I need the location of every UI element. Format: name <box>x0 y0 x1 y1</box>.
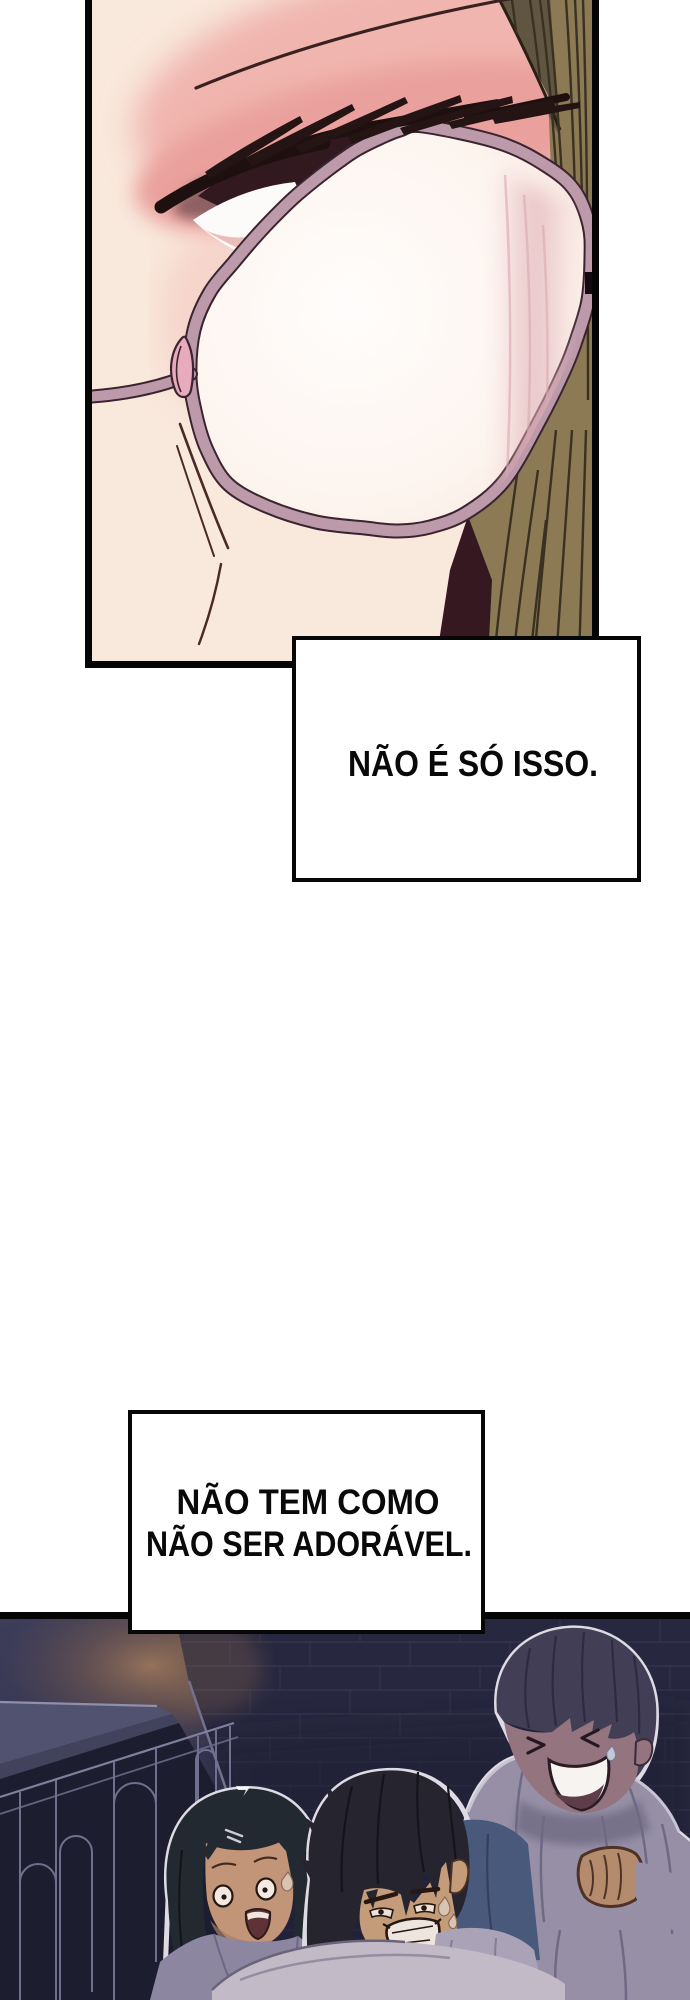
svg-text:NÃO SER ADORÁVEL.: NÃO SER ADORÁVEL. <box>146 1524 472 1564</box>
svg-text:NÃO É SÓ ISSO.: NÃO É SÓ ISSO. <box>348 742 598 784</box>
svg-text:NÃO TEM COMO: NÃO TEM COMO <box>177 1483 440 1522</box>
